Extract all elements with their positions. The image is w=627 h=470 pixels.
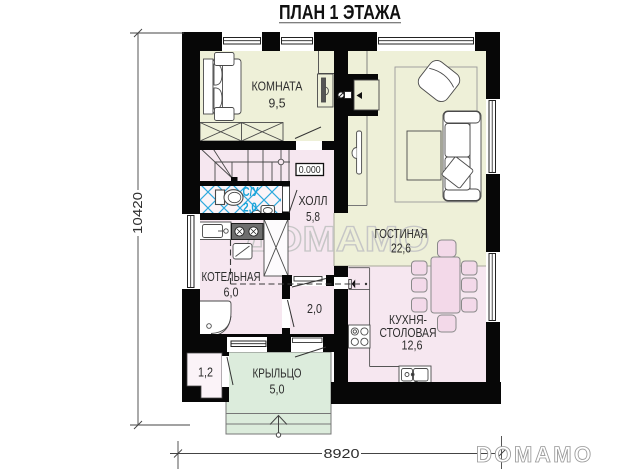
svg-text:5,0: 5,0: [270, 383, 285, 397]
svg-text:КУХНЯ-: КУХНЯ-: [389, 313, 427, 327]
svg-text:1,2: 1,2: [198, 366, 213, 380]
svg-text:2,0: 2,0: [307, 302, 322, 316]
svg-text:5,8: 5,8: [306, 210, 320, 224]
svg-text:КОТЕЛЬНАЯ: КОТЕЛЬНАЯ: [202, 270, 261, 284]
svg-text:2,0: 2,0: [243, 201, 257, 215]
svg-text:DOMAMO: DOMAMO: [476, 442, 594, 467]
svg-text:9,5: 9,5: [269, 97, 286, 111]
svg-text:КОМНАТА: КОМНАТА: [252, 80, 304, 94]
svg-text:КРЫЛЬЦО: КРЫЛЬЦО: [253, 367, 302, 381]
svg-text:12,6: 12,6: [402, 339, 423, 353]
svg-text:ПЛАН 1 ЭТАЖА: ПЛАН 1 ЭТАЖА: [279, 2, 401, 24]
svg-text:ГОСТИНАЯ: ГОСТИНАЯ: [375, 227, 428, 241]
svg-text:С/У: С/У: [243, 185, 259, 199]
svg-text:6,0: 6,0: [224, 286, 239, 300]
svg-text:10420: 10420: [131, 192, 145, 234]
svg-text:8920: 8920: [324, 446, 360, 461]
svg-text:ХОЛЛ: ХОЛЛ: [299, 194, 328, 208]
svg-text:22,6: 22,6: [391, 242, 411, 256]
svg-text:0.000: 0.000: [299, 164, 321, 176]
